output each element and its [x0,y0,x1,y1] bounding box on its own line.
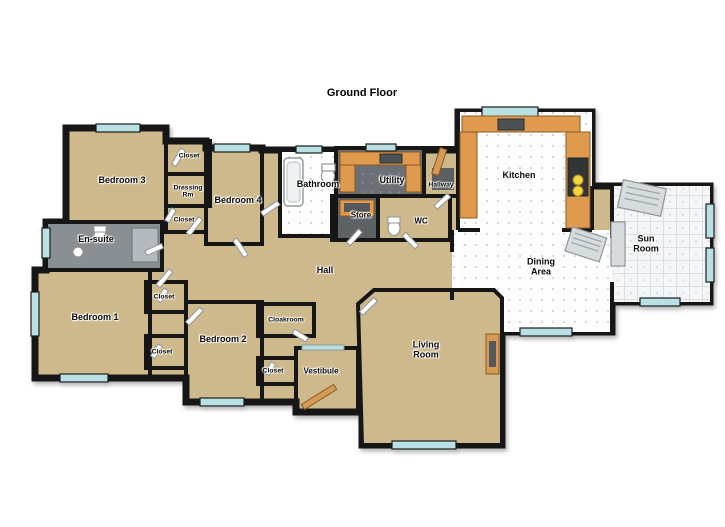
kitchen-sink [498,119,524,130]
window [60,374,108,382]
window [392,441,456,449]
fireplace [486,334,499,374]
hob-burner [573,175,583,185]
window [706,204,714,238]
kitchen-counter-left [460,132,477,218]
window [200,398,244,406]
window [42,228,50,258]
window [214,144,250,152]
hob-burner [573,186,583,196]
window [640,298,680,306]
window [706,248,714,282]
shower [132,228,158,262]
floorplan-drawing [0,0,725,527]
basin [73,247,83,257]
store-cabinet [340,200,374,216]
floorplan-canvas: Ground Floor Bedroom 3 Closet Dressing R… [0,0,725,527]
window [296,146,322,153]
plan-title: Ground Floor [327,87,397,99]
living-room-floor [358,290,502,445]
window [31,292,39,336]
utility-sink [380,154,402,163]
window [366,144,396,151]
window [520,328,572,336]
radiator [611,222,625,266]
window [96,124,140,132]
utility-counter-right [406,165,421,192]
wc-fixtures [388,217,400,236]
vestibule-glazed-door [302,345,344,350]
utility-counter-left [340,165,355,192]
